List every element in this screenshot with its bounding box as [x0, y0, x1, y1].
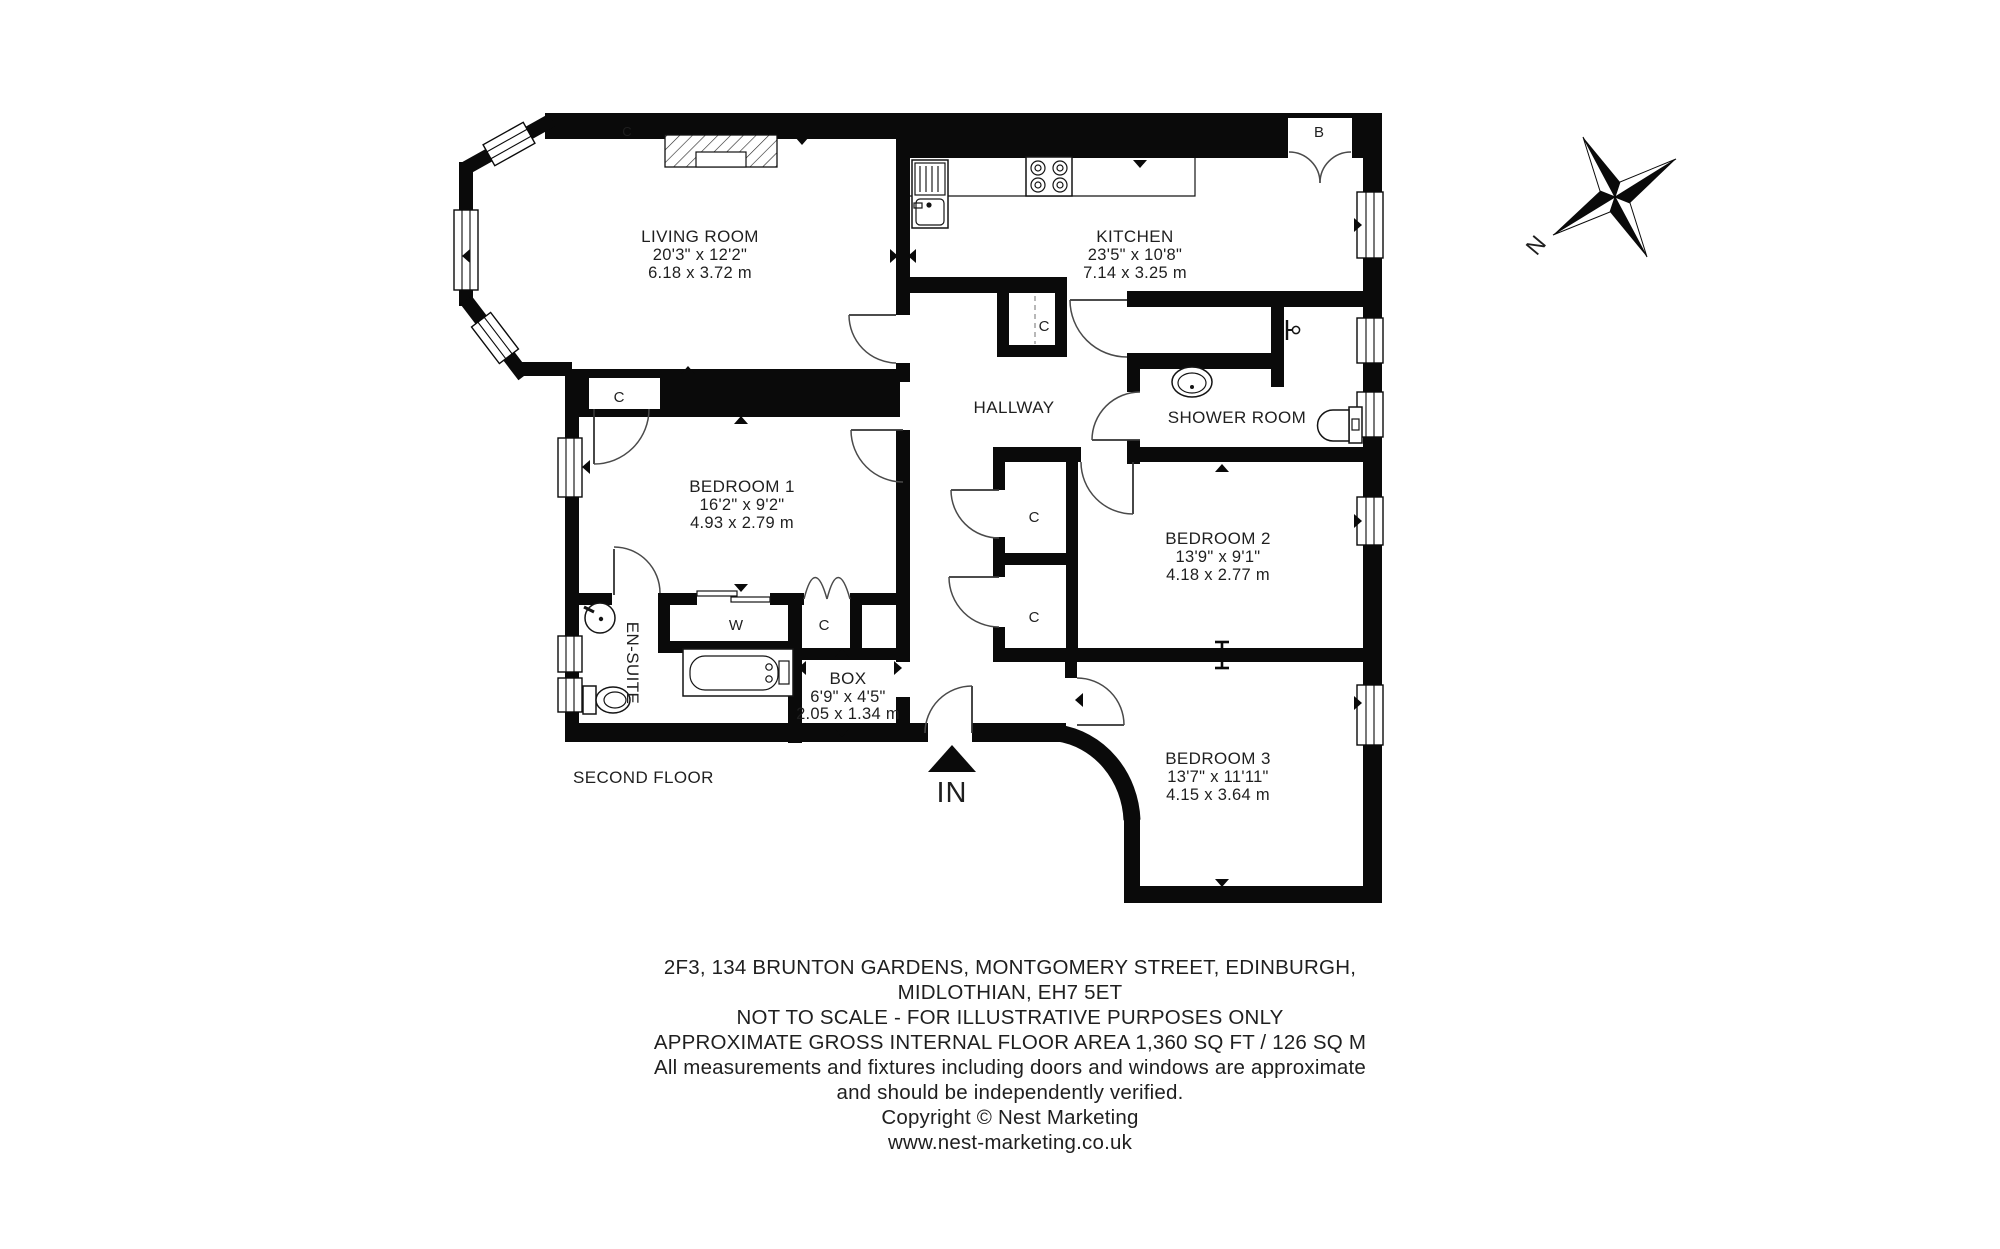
- living-room-door: [849, 315, 896, 363]
- closet-bifold-door: [804, 578, 850, 600]
- bathtub: [683, 649, 793, 696]
- footer-measurements-note1: All measurements and fixtures including …: [654, 1056, 1366, 1079]
- cupboard-marker-bifold: C: [819, 617, 830, 634]
- box-room-dims-metric: 2.05 x 1.34 m: [796, 705, 900, 723]
- bedroom3-label: BEDROOM 3: [1165, 749, 1271, 768]
- cupboard-marker-bedroom1: C: [614, 389, 625, 406]
- footer-floor-area: APPROXIMATE GROSS INTERNAL FLOOR AREA 1,…: [654, 1031, 1366, 1054]
- bedroom3-dims-imperial: 13'7" x 11'11": [1167, 768, 1268, 786]
- kitchen-dims-metric: 7.14 x 3.25 m: [1083, 264, 1187, 282]
- bedroom2-label: BEDROOM 2: [1165, 529, 1271, 548]
- shower-valve: [1287, 320, 1300, 340]
- floorplan-page: LIVING ROOM 20'3" x 12'2" 6.18 x 3.72 m …: [0, 0, 2000, 1249]
- bedroom1-door: [851, 430, 903, 482]
- ensuite-basin: [584, 603, 615, 633]
- footer-disclaimer-scale: NOT TO SCALE - FOR ILLUSTRATIVE PURPOSES…: [736, 1006, 1283, 1029]
- shower-room-door: [1092, 392, 1140, 440]
- floor-label: SECOND FLOOR: [573, 768, 714, 787]
- bedroom2-door: [1081, 462, 1133, 514]
- entrance-arrow-icon: [928, 745, 976, 772]
- fireplace: [665, 135, 777, 167]
- ensuite-door: [614, 547, 660, 595]
- room-labels: LIVING ROOM 20'3" x 12'2" 6.18 x 3.72 m …: [614, 124, 1324, 804]
- compass-rose-icon: N: [1520, 137, 1676, 260]
- cupboard-marker-closet2: C: [1029, 609, 1040, 626]
- kitchen-dims-imperial: 23'5" x 10'8": [1088, 246, 1182, 264]
- ensuite-toilet: [583, 686, 630, 714]
- bedroom1-cupboard-recess: [589, 378, 660, 409]
- kitchen-label: KITCHEN: [1096, 227, 1173, 246]
- boiler-marker: B: [1314, 124, 1324, 141]
- box-room-dims-imperial: 6'9" x 4'5": [810, 688, 885, 706]
- footer-text: 2F3, 134 BRUNTON GARDENS, MONTGOMERY STR…: [654, 956, 1366, 1154]
- footer-address-line2: MIDLOTHIAN, EH7 5ET: [898, 981, 1123, 1004]
- hallway-label: HALLWAY: [974, 398, 1055, 417]
- entrance-door: [925, 686, 972, 733]
- shower-room-label: SHOWER ROOM: [1168, 408, 1307, 427]
- floorplan-canvas: LIVING ROOM 20'3" x 12'2" 6.18 x 3.72 m …: [0, 0, 2000, 1249]
- footer-website: www.nest-marketing.co.uk: [887, 1131, 1133, 1154]
- bedroom1-cupboard-door: [594, 409, 649, 464]
- curved-wall: [1058, 733, 1132, 820]
- bedroom3-dims-metric: 4.15 x 3.64 m: [1166, 786, 1270, 804]
- bedroom2-dims-metric: 4.18 x 2.77 m: [1166, 566, 1270, 584]
- entrance-label: IN: [937, 777, 968, 809]
- cupboard-marker-closet1: C: [1029, 509, 1040, 526]
- cupboard-marker-hallway: C: [1039, 318, 1050, 335]
- bedroom3-door: [1077, 678, 1124, 725]
- kitchen-sink: [912, 160, 948, 228]
- cupboard-marker-living: C: [622, 124, 631, 139]
- bay-window: [454, 122, 535, 363]
- stove: [1026, 157, 1072, 196]
- wardrobe-sliding-door: [697, 591, 770, 602]
- box-room-label: BOX: [829, 669, 866, 688]
- bedroom1-label: BEDROOM 1: [689, 477, 795, 496]
- ensuite-label: EN-SUITE: [623, 622, 642, 705]
- living-room-label: LIVING ROOM: [641, 227, 759, 246]
- shower-basin: [1172, 367, 1212, 397]
- footer-address-line1: 2F3, 134 BRUNTON GARDENS, MONTGOMERY STR…: [664, 956, 1356, 979]
- hall-closet-door-2: [949, 577, 999, 627]
- entrance-marker: IN: [928, 745, 976, 809]
- hall-closet-door-1: [951, 490, 999, 538]
- kitchen-door: [1070, 300, 1127, 357]
- bedroom1-dims-metric: 4.93 x 2.79 m: [690, 514, 794, 532]
- footer-measurements-note2: and should be independently verified.: [836, 1081, 1183, 1104]
- bedroom2-dims-imperial: 13'9" x 9'1": [1176, 548, 1261, 566]
- wardrobe-marker: W: [729, 617, 744, 634]
- living-room-dims-imperial: 20'3" x 12'2": [653, 246, 747, 264]
- footer-copyright: Copyright © Nest Marketing: [881, 1106, 1138, 1129]
- living-room-dims-metric: 6.18 x 3.72 m: [648, 264, 752, 282]
- compass-north-label: N: [1520, 230, 1551, 259]
- bedroom1-dims-imperial: 16'2" x 9'2": [700, 496, 785, 514]
- bedroom1-window: [558, 438, 582, 497]
- shower-room-toilet: [1318, 407, 1363, 443]
- bedroom3-window: [1357, 685, 1383, 745]
